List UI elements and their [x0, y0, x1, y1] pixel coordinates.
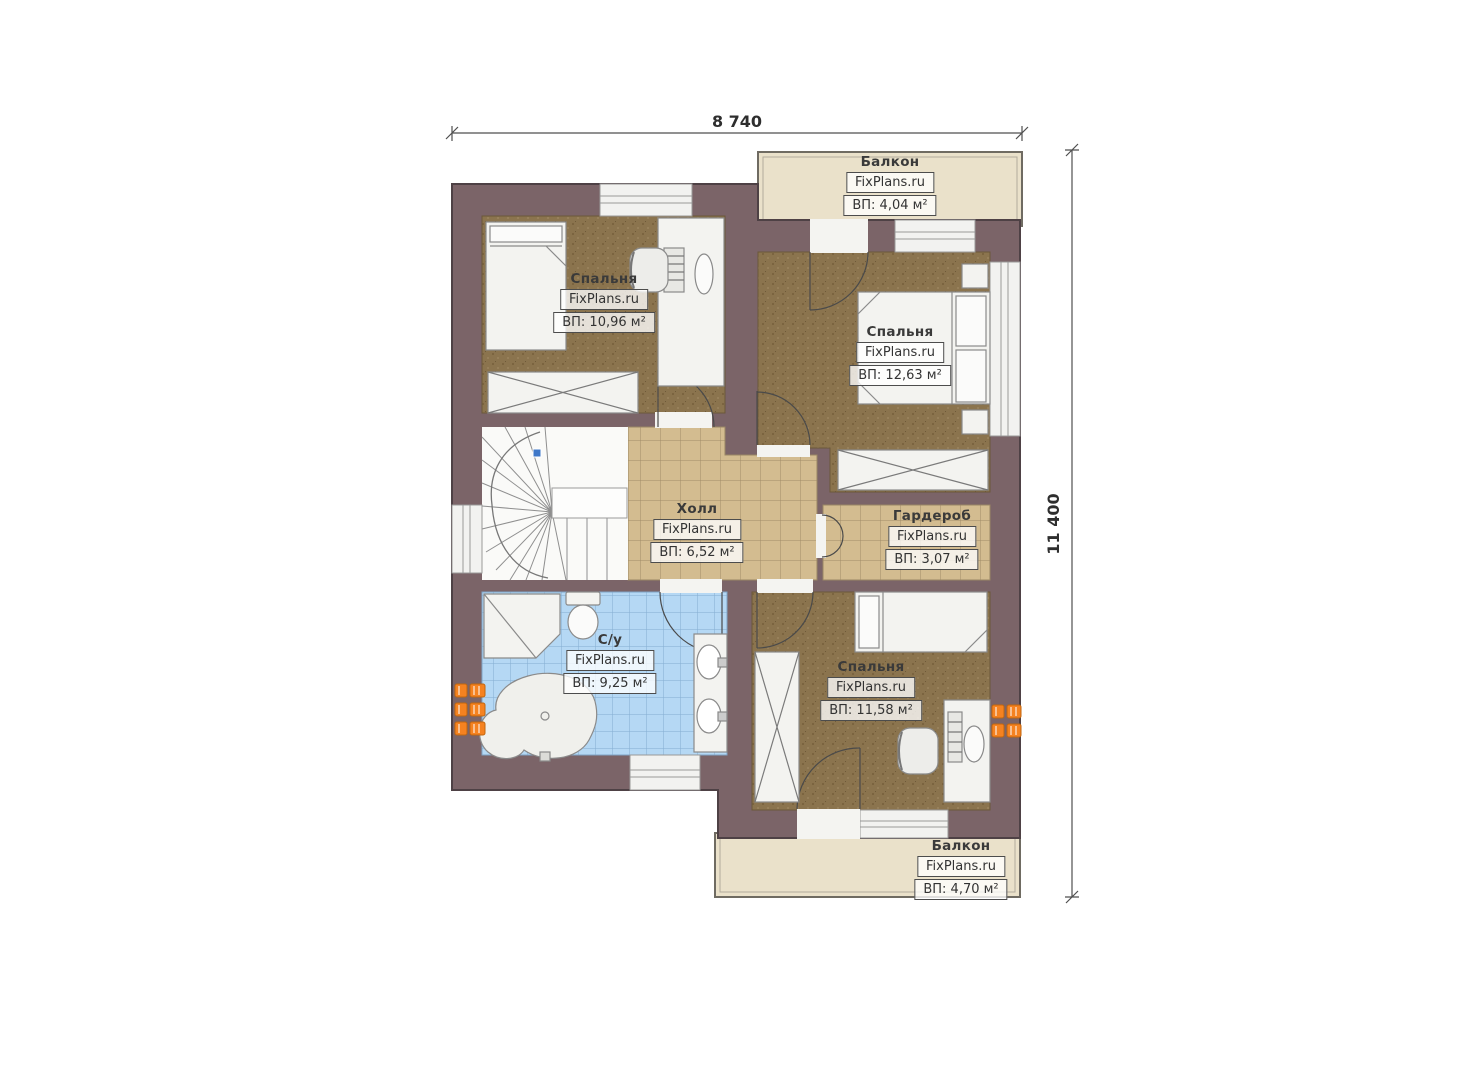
opening-wardrobe	[816, 514, 826, 558]
bed-icon	[858, 292, 990, 404]
wardrobe-icon	[755, 652, 799, 802]
window-bedroom-tr-right	[990, 262, 1020, 436]
sink-vanity-icon	[694, 634, 727, 752]
radiator-icon	[455, 684, 485, 735]
floor-plan-page: 8 740 11 400 Балкон FixPlans.ru ВП: 4,04…	[0, 0, 1474, 1080]
bed-icon	[855, 592, 987, 652]
nightstand-icon	[962, 264, 988, 288]
nightstand-icon	[962, 410, 988, 434]
opening-balcony-bottom-door	[797, 809, 860, 839]
wardrobe-icon	[488, 372, 638, 413]
window-bathroom-bottom	[630, 755, 700, 790]
opening-bathroom	[660, 579, 722, 593]
stair-direction-marker	[533, 449, 541, 457]
toilet-icon	[566, 592, 600, 639]
opening-balcony-top-door	[810, 219, 868, 253]
balcony-top-structure	[758, 152, 1022, 226]
floor-plan-drawing: 8 740 11 400	[0, 0, 1474, 1080]
dimension-height: 11 400	[1044, 144, 1079, 903]
chair-icon	[898, 728, 938, 774]
dimension-height-label: 11 400	[1044, 493, 1063, 554]
opening-bedroom-tl	[655, 412, 712, 428]
wardrobe-icon	[838, 450, 988, 490]
desk-icon	[944, 700, 990, 802]
dimension-width: 8 740	[446, 112, 1028, 141]
chair-icon	[630, 248, 668, 292]
window-stairwell-left	[452, 505, 482, 573]
opening-bedroom-tr-hall	[757, 445, 810, 457]
window-bedroom-tl-top	[600, 184, 692, 216]
floor-wardrobe	[823, 505, 990, 580]
balcony-bottom-structure	[715, 833, 1020, 897]
opening-bedroom-br-hall	[757, 579, 813, 593]
dimension-width-label: 8 740	[712, 112, 762, 131]
window-balcony-top	[895, 220, 975, 252]
window-bedroom-br-bottom	[860, 810, 948, 838]
desk-icon	[658, 218, 724, 386]
bed-icon	[486, 222, 566, 350]
